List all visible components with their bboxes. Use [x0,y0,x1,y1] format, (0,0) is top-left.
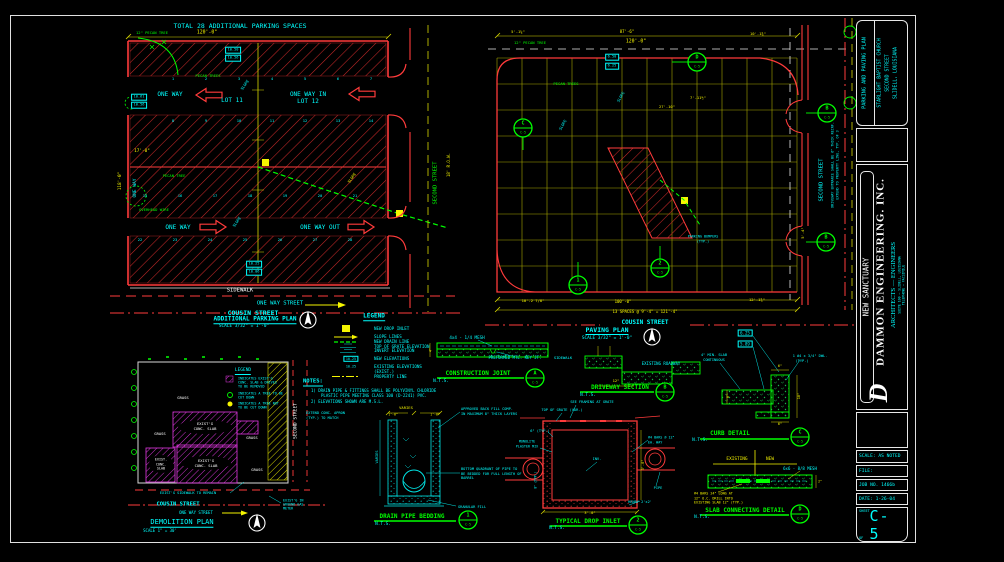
client-street: SECOND STREET [887,54,892,92]
sheet-of-label: OF [859,536,863,540]
firm-logo: D [866,384,892,403]
firm-name: DAMMON ENGINEERING. INC. [876,178,887,366]
job-number-field: JOB NO. 1466b [856,479,908,491]
cad-sheet: TOTAL 28 ADDITIONAL PARKING SPACES120'-0… [0,0,1004,562]
sheet-number: C-5 [870,507,895,543]
firm-subtitle: ARCHITECTS — ENGINEERS [891,242,898,328]
divider [874,21,875,125]
title-block-empty-box-2 [856,412,908,448]
date-field: DATE: 1-26-04 [856,493,908,505]
title-block-empty-box-1 [856,128,908,162]
drawing-title: PARKING AND PAVING PLAN [862,37,867,109]
firm-address-2: TELEPHONE — FACSIMILE [902,265,905,305]
sheet-label: SHEET [859,509,870,513]
sheet-number-box: SHEET C-5 OF [856,507,908,542]
client-name: STARLIGHT BAPTIST CHURCH [879,38,884,107]
file-field: FILE: [856,465,908,477]
project-name: NEW SANCTUARY [862,258,870,317]
sheet-border [10,15,916,543]
client-city: SLIDELL, LOUISIANA [895,47,900,99]
scale-field: SCALE: AS NOTED [856,450,908,463]
